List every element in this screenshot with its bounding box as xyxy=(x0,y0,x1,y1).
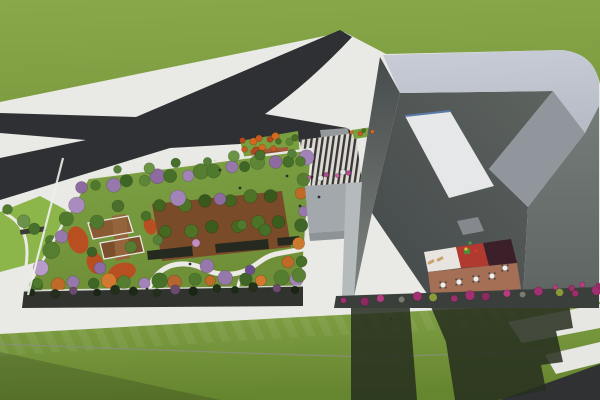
garden-bottom-row-tree xyxy=(117,275,130,288)
cafe-table xyxy=(488,272,496,280)
garden-scatter-tree xyxy=(170,190,186,206)
orchard-row-1-tree xyxy=(224,195,236,207)
garden-right-row-tree xyxy=(296,256,307,267)
garden-top-row-tree xyxy=(226,161,238,173)
entry-red-row-2-tree xyxy=(270,146,276,152)
person-dot xyxy=(146,288,149,291)
entry-green-row-tree xyxy=(292,134,299,141)
cafe-chair xyxy=(445,281,447,283)
cafe-chair xyxy=(507,270,509,272)
terrace-person xyxy=(474,249,477,252)
cafe-table xyxy=(501,264,509,272)
cafe-chair xyxy=(494,278,496,280)
podium-hedge-row-tree xyxy=(110,285,119,294)
plaza-flower-row-tree xyxy=(346,171,351,176)
cafe-chair xyxy=(445,287,447,289)
building-shrub-row-tree xyxy=(341,297,347,303)
cafe-chair xyxy=(488,278,490,280)
terrace-floor-maroon xyxy=(483,239,517,266)
cafe-table-top xyxy=(489,273,494,278)
podium-hedge-row-tree xyxy=(213,284,221,292)
garden-right-row-tree xyxy=(297,173,310,186)
orchard-row-1-tree xyxy=(199,194,212,207)
verge-flower-row-tree xyxy=(350,131,354,135)
garden-scatter-tree xyxy=(141,211,151,221)
aerial-render-svg xyxy=(0,0,600,400)
cafe-chair xyxy=(461,284,463,286)
person-dot xyxy=(189,263,192,266)
terrace-person xyxy=(468,241,471,244)
building-shrub-row-tree xyxy=(429,293,437,301)
garden-bottom-row-tree xyxy=(139,278,150,289)
building-shrub-row-tree xyxy=(451,295,458,302)
verge-flower-row-tree xyxy=(371,130,375,134)
garden-scatter-tree xyxy=(125,241,137,253)
podium-hedge-row-tree xyxy=(69,287,77,295)
garden-scatter-tree xyxy=(245,265,255,275)
person-dot xyxy=(267,289,270,292)
building-shrub-row-tree xyxy=(520,291,526,297)
garden-top-row-tree xyxy=(269,156,282,169)
garden-right-row-tree xyxy=(295,219,308,232)
building-shrub-row-tree xyxy=(360,297,369,306)
garden-scatter-tree xyxy=(214,193,226,205)
person-dot xyxy=(286,175,289,178)
west-park-trees-tree xyxy=(29,223,41,235)
bougainvillea-row-tree xyxy=(596,283,600,288)
building-shrub-row-tree xyxy=(534,287,543,296)
garden-bottom-row-tree xyxy=(33,278,43,288)
garden-street-row-tree xyxy=(228,151,239,162)
garden-scatter-tree xyxy=(87,247,97,257)
garden-street-row-tree xyxy=(255,150,265,160)
garden-top-row-tree xyxy=(164,169,177,182)
plaza-flower-row-tree xyxy=(318,176,323,181)
garden-bottom-row-tree xyxy=(274,270,289,285)
orchard-row-2-tree xyxy=(160,225,172,237)
garden-top-row-tree xyxy=(91,180,101,190)
garden-top-row-tree xyxy=(207,164,221,178)
person-dot xyxy=(311,176,314,179)
garden-bottom-row-tree xyxy=(218,271,233,286)
garden-right-row-tree xyxy=(293,237,305,249)
west-park-trees-tree xyxy=(17,215,30,228)
podium-hedge-row-tree xyxy=(291,286,299,294)
cafe-chair xyxy=(472,275,474,277)
orchard-row-1-tree xyxy=(264,190,277,203)
plaza-flower-row-tree xyxy=(324,172,329,177)
garden-right-row-tree xyxy=(292,269,306,283)
cafe-chair xyxy=(501,270,503,272)
cafe-table xyxy=(472,275,480,283)
orchard-row-1-tree xyxy=(244,189,258,203)
garden-top-row-tree xyxy=(239,161,249,171)
cafe-chair xyxy=(507,264,509,266)
cafe-table xyxy=(439,281,447,289)
cafe-chair xyxy=(472,281,474,283)
cafe-chair xyxy=(455,278,457,280)
building-shrub-row-tree xyxy=(503,290,510,297)
garden-street-row-tree xyxy=(171,158,181,168)
building-shrub-row-tree xyxy=(465,291,475,301)
person-dot xyxy=(299,205,302,208)
garden-bottom-row-tree xyxy=(205,275,215,285)
garden-scatter-tree xyxy=(282,256,294,268)
garden-left-row-tree xyxy=(59,212,73,226)
orchard-row-2-tree xyxy=(185,225,198,238)
cafe-chair xyxy=(494,272,496,274)
garden-top-row-tree xyxy=(183,170,194,181)
cafe-chair xyxy=(439,281,441,283)
cafe-table-top xyxy=(473,276,478,281)
garden-bottom-row-tree xyxy=(152,273,168,289)
garden-left-row-tree xyxy=(43,242,60,259)
podium-hedge-row-tree xyxy=(51,289,60,298)
garden-scatter-tree xyxy=(237,220,247,230)
building-shrub-row-tree xyxy=(377,295,385,303)
cafe-chair xyxy=(488,272,490,274)
garden-top-row-tree xyxy=(120,175,132,187)
podium-hedge-row-tree xyxy=(189,287,198,296)
cafe-chair xyxy=(501,264,503,266)
person-dot xyxy=(219,169,222,172)
cafe-chair xyxy=(461,278,463,280)
cafe-table-top xyxy=(440,282,445,287)
building-shrub-row-tree xyxy=(481,292,490,301)
garden-street-row-tree xyxy=(203,157,211,165)
plaza-flower-row-tree xyxy=(340,169,346,175)
person-dot xyxy=(318,196,321,199)
orchard-row-1-tree xyxy=(154,199,166,211)
garden-street-row-tree xyxy=(144,163,155,174)
podium-hedge-row-tree xyxy=(93,289,100,296)
cafe-chair xyxy=(478,281,480,283)
bougainvillea-row-tree xyxy=(579,282,585,288)
west-park-trees-tree xyxy=(3,204,13,214)
garden-right-row-tree xyxy=(295,188,307,200)
cafe-table xyxy=(455,278,463,286)
podium-hedge-row-tree xyxy=(273,284,281,292)
garden-scatter-tree xyxy=(259,224,271,236)
garden-top-row-tree xyxy=(139,175,150,186)
bougainvillea-row-tree xyxy=(553,285,558,290)
garden-left-row-tree xyxy=(55,230,68,243)
garden-left-row-tree xyxy=(69,197,85,213)
podium-hedge-row-tree xyxy=(231,286,238,293)
entry-green-row-tree xyxy=(276,138,282,144)
garden-street-row-tree xyxy=(114,165,122,173)
garden-scatter-tree xyxy=(94,262,106,274)
person-dot xyxy=(239,187,242,190)
cafe-table-top xyxy=(456,279,461,284)
garden-bottom-row-tree xyxy=(88,278,99,289)
cafe-chair xyxy=(478,275,480,277)
podium-hedge-row-tree xyxy=(153,289,161,297)
podium-hedge-row-tree xyxy=(249,282,258,291)
garden-street-row-tree xyxy=(288,149,297,158)
building-shadow-band xyxy=(351,298,417,400)
building-shrub-row-tree xyxy=(398,296,404,302)
garden-scatter-tree xyxy=(192,239,200,247)
garden-scatter-tree xyxy=(153,235,163,245)
garden-right-row-tree xyxy=(296,156,306,166)
cafe-chair xyxy=(439,287,441,289)
garden-bottom-row-tree xyxy=(67,276,79,288)
terrace-person xyxy=(464,247,467,250)
garden-bottom-row-tree xyxy=(189,273,201,285)
cafe-table-top xyxy=(502,265,507,270)
rendering-canvas xyxy=(0,0,600,400)
entry-red-row-2-tree xyxy=(242,146,248,152)
entry-red-row-1-tree xyxy=(240,137,246,143)
garden-top-row-tree xyxy=(107,178,121,192)
bougainvillea-row-tree xyxy=(569,285,575,291)
orchard-row-2-tree xyxy=(272,216,285,229)
orchard-row-2-tree xyxy=(205,220,218,233)
garden-scatter-tree xyxy=(112,200,124,212)
garden-scatter-tree xyxy=(200,259,214,273)
garden-left-row-tree xyxy=(76,181,88,193)
cafe-chair xyxy=(455,284,457,286)
garden-scatter-tree xyxy=(90,215,104,229)
verge-flower-row-tree xyxy=(362,128,366,132)
podium-hedge-row-tree xyxy=(129,287,138,296)
person-dot xyxy=(390,318,393,321)
plaza-flower-row-tree xyxy=(335,174,339,178)
building-shrub-row-tree xyxy=(413,292,422,301)
podium-hedge-row-tree xyxy=(170,285,180,295)
entry-red-row-1-tree xyxy=(256,135,263,142)
